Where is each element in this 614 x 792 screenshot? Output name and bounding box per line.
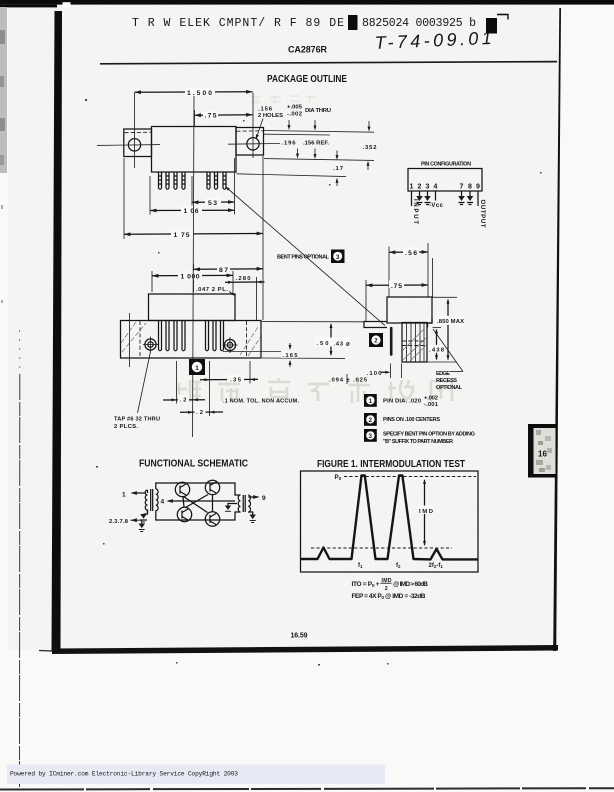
svg-text:ITO = P0 +: ITO = P0 + bbox=[352, 581, 380, 589]
svg-text:1 000: 1 000 bbox=[181, 273, 200, 280]
svg-text:-.001: -.001 bbox=[424, 402, 439, 408]
svg-text:.047 2 PL.: .047 2 PL. bbox=[196, 287, 228, 293]
svg-text:3: 3 bbox=[426, 184, 430, 191]
svg-text:8825024 0003925 b: 8825024 0003925 b bbox=[362, 17, 476, 30]
svg-text:.094 ± .025: .094 ± .025 bbox=[329, 378, 368, 384]
svg-text:.75: .75 bbox=[205, 113, 217, 120]
svg-text:.2: .2 bbox=[180, 398, 188, 404]
svg-text:87: 87 bbox=[219, 267, 228, 274]
svg-text:53: 53 bbox=[208, 200, 217, 207]
svg-text:"B" SUFFIX TO PART NUMBER: "B" SUFFIX TO PART NUMBER bbox=[383, 439, 453, 445]
svg-text:+.002: +.002 bbox=[424, 396, 439, 402]
svg-text:.17: .17 bbox=[333, 166, 344, 172]
svg-text:OUTPUT: OUTPUT bbox=[479, 200, 485, 228]
svg-text:.438: .438 bbox=[429, 348, 445, 354]
svg-text:7: 7 bbox=[460, 184, 464, 191]
svg-text:2 PLCS.: 2 PLCS. bbox=[114, 424, 138, 430]
svg-text:CA2876R: CA2876R bbox=[288, 45, 328, 55]
svg-text:EDGE: EDGE bbox=[436, 371, 450, 377]
svg-text:9: 9 bbox=[262, 495, 266, 502]
svg-text:OPTIONAL: OPTIONAL bbox=[436, 385, 463, 391]
svg-text:4: 4 bbox=[161, 499, 165, 506]
svg-text:TAP #6 32 THRU: TAP #6 32 THRU bbox=[114, 417, 160, 423]
svg-text:16: 16 bbox=[538, 450, 547, 459]
svg-text:1: 1 bbox=[410, 184, 414, 191]
svg-text:RECESS: RECESS bbox=[436, 378, 457, 384]
svg-text:T R W ELEK CMPNT/ R F 89 DE: T R W ELEK CMPNT/ R F 89 DE bbox=[132, 17, 344, 30]
svg-text:4: 4 bbox=[434, 184, 438, 191]
svg-text:DIA THRU: DIA THRU bbox=[305, 108, 331, 114]
svg-text:-.002: -.002 bbox=[287, 112, 303, 118]
svg-text:.156 REF.: .156 REF. bbox=[303, 141, 329, 147]
svg-text:.850 MAX: .850 MAX bbox=[437, 319, 464, 325]
svg-text:PINS ON .100 CENTERS: PINS ON .100 CENTERS bbox=[383, 417, 440, 423]
svg-text:.280: .280 bbox=[236, 276, 252, 282]
svg-text:BENT PINS OPTIONAL: BENT PINS OPTIONAL bbox=[277, 255, 330, 261]
svg-text:.56: .56 bbox=[405, 250, 417, 257]
svg-text:.165: .165 bbox=[283, 353, 299, 359]
svg-text:.43 ⌀: .43 ⌀ bbox=[334, 341, 350, 347]
svg-text:.1 NOM. TOL. NON ACCUM.: .1 NOM. TOL. NON ACCUM. bbox=[223, 399, 299, 405]
svg-text:16.59: 16.59 bbox=[291, 633, 308, 640]
svg-text:2.3.7.8: 2.3.7.8 bbox=[109, 519, 129, 525]
svg-text:.352: .352 bbox=[363, 145, 378, 151]
svg-text:9: 9 bbox=[476, 184, 480, 191]
svg-text:-Vcc: -Vcc bbox=[429, 203, 444, 209]
svg-text:1: 1 bbox=[195, 365, 199, 372]
svg-text:f1: f1 bbox=[358, 563, 363, 569]
svg-text:FEP = 4X P0 @ IMD = -32dB: FEP = 4X P0 @ IMD = -32dB bbox=[352, 593, 426, 601]
svg-text:1 75: 1 75 bbox=[174, 232, 190, 239]
svg-text:1: 1 bbox=[122, 492, 126, 499]
svg-text:2 HOLES: 2 HOLES bbox=[258, 113, 283, 119]
svg-text:PIN DIA. .020: PIN DIA. .020 bbox=[383, 399, 422, 405]
svg-text:8: 8 bbox=[468, 184, 472, 191]
svg-text:2: 2 bbox=[418, 184, 422, 191]
svg-text:FUNCTIONAL SCHEMATIC: FUNCTIONAL SCHEMATIC bbox=[139, 458, 248, 470]
svg-text:.156: .156 bbox=[258, 107, 273, 113]
svg-text:SPECIFY BENT PIN OPTION BY ADD: SPECIFY BENT PIN OPTION BY ADDING bbox=[383, 432, 475, 438]
svg-text:.75: .75 bbox=[391, 283, 402, 290]
svg-text:FIGURE 1. INTERMODULATION TEST: FIGURE 1. INTERMODULATION TEST bbox=[317, 458, 465, 470]
svg-text:2f2-f1: 2f2-f1 bbox=[429, 563, 444, 569]
svg-text:2: 2 bbox=[385, 586, 388, 592]
svg-text:@ IMD > 60dB: @ IMD > 60dB bbox=[393, 581, 428, 588]
svg-text:PACKAGE OUTLINE: PACKAGE OUTLINE bbox=[267, 74, 347, 85]
svg-text:f2: f2 bbox=[396, 563, 401, 569]
svg-text:.196: .196 bbox=[282, 141, 297, 147]
svg-text:.2: .2 bbox=[196, 410, 204, 416]
svg-text:+.005: +.005 bbox=[287, 105, 303, 111]
svg-text:Powered by ICminer.com Electro: Powered by ICminer.com Electronic-Librar… bbox=[10, 771, 238, 778]
svg-text:1 06: 1 06 bbox=[184, 208, 199, 215]
svg-text:PIN CONFIGURATION: PIN CONFIGURATION bbox=[421, 162, 471, 168]
svg-text:.100: .100 bbox=[367, 371, 383, 377]
